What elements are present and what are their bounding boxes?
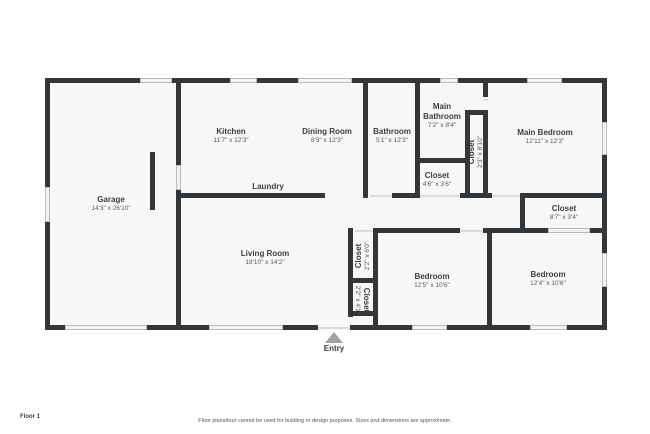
door-opening — [318, 327, 350, 329]
wall-segment — [257, 78, 298, 83]
floor-plan-page: Garage14'3" x 26'10"Kitchen11'7" x 12'3"… — [0, 0, 650, 434]
wall-segment — [602, 78, 607, 122]
wall-segment — [520, 228, 548, 233]
wall-segment — [373, 228, 460, 233]
room-dimensions: 8'9" x 12'3" — [302, 137, 352, 145]
room-dimensions: 12'5" x 10'6" — [414, 282, 450, 290]
room-label-dining-room: Dining Room8'9" x 12'3" — [302, 127, 352, 145]
room-label-bedroom: Bedroom12'4" x 10'6" — [530, 270, 566, 288]
room-name: Main Bathroom — [416, 102, 468, 122]
wall-segment — [178, 193, 325, 198]
room-name: Kitchen — [213, 127, 248, 137]
room-dimensions: 12'4" x 10'6" — [530, 280, 566, 288]
room-name: Bedroom — [414, 272, 450, 282]
room-name: Closet — [550, 204, 578, 214]
wall-segment — [350, 325, 412, 330]
room-name: Living Room — [241, 249, 289, 259]
room-dimensions: 14'3" x 26'10" — [91, 205, 130, 213]
wall-segment — [392, 193, 420, 198]
door-opening — [420, 195, 460, 197]
room-name: Laundry — [252, 182, 284, 192]
wall-segment — [602, 287, 607, 330]
wall-segment — [176, 83, 181, 165]
wall-segment — [590, 228, 607, 233]
entry-arrow-icon — [325, 332, 343, 343]
room-name: Garage — [91, 195, 130, 205]
room-name: Bedroom — [530, 270, 566, 280]
room-label-main-bedroom: Main Bedroom12'11" x 12'3" — [517, 128, 573, 146]
room-dimensions: 12'11" x 12'3" — [517, 138, 573, 146]
room-label-closet: Closet8'7" x 3'4" — [550, 204, 578, 222]
wall-segment — [45, 78, 50, 187]
wall-segment — [348, 278, 378, 283]
window-segment — [412, 325, 447, 330]
wall-segment — [483, 83, 488, 97]
disclaimer-text: Floor plans/tour cannot be used for buil… — [0, 418, 650, 424]
window-segment — [602, 253, 607, 287]
door-opening — [355, 230, 373, 232]
wall-segment — [447, 325, 530, 330]
wall-segment — [150, 152, 155, 210]
wall-segment — [487, 233, 492, 325]
door-opening — [492, 195, 520, 197]
window-segment — [65, 325, 147, 330]
room-label-main-bathroom: Main Bathroom7'2" x 8'4" — [416, 102, 468, 130]
wall-segment — [45, 222, 50, 330]
room-name: Closet — [354, 242, 364, 270]
room-dimensions: 7'2" x 8'4" — [416, 122, 468, 130]
window-segment — [209, 325, 283, 330]
room-dimensions: 2'2" x 4'1" — [353, 286, 361, 314]
room-dimensions: 18'10" x 14'2" — [241, 259, 289, 267]
room-label-laundry: Laundry — [252, 182, 284, 192]
room-label-closet: Closet2'2" x 4'1" — [353, 286, 371, 314]
window-segment — [140, 78, 172, 83]
entry-label: Entry — [324, 344, 344, 353]
wall-segment — [562, 78, 607, 83]
room-dimensions: 2'2" x 6'0" — [364, 242, 372, 270]
wall-segment — [567, 325, 607, 330]
room-label-closet: Closet2'3" x 8'10" — [467, 136, 485, 168]
wall-segment — [458, 78, 527, 83]
wall-segment — [415, 83, 420, 198]
room-dimensions: 4'6" x 3'6" — [423, 181, 451, 189]
room-label-garage: Garage14'3" x 26'10" — [91, 195, 130, 213]
room-label-living-room: Living Room18'10" x 14'2" — [241, 249, 289, 267]
room-dimensions: 5'1" x 12'3" — [373, 137, 411, 145]
room-name: Dining Room — [302, 127, 352, 137]
room-label-closet: Closet2'2" x 6'0" — [354, 242, 372, 270]
door-opening — [483, 99, 488, 101]
window-segment — [548, 228, 590, 233]
wall-segment — [45, 78, 140, 83]
wall-segment — [363, 83, 368, 198]
room-name: Closet — [361, 286, 371, 314]
window-segment — [45, 187, 50, 222]
wall-segment — [460, 193, 492, 198]
wall-segment — [520, 193, 607, 198]
window-segment — [602, 122, 607, 155]
room-label-bedroom: Bedroom12'5" x 10'6" — [414, 272, 450, 290]
room-name: Main Bedroom — [517, 128, 573, 138]
room-dimensions: 2'3" x 8'10" — [477, 136, 485, 168]
wall-segment — [283, 325, 318, 330]
room-label-bathroom: Bathroom5'1" x 12'3" — [373, 127, 411, 145]
window-segment — [440, 78, 458, 83]
room-label-kitchen: Kitchen11'7" x 12'3" — [213, 127, 248, 145]
room-label-closet: Closet4'6" x 3'6" — [423, 171, 451, 189]
room-name: Closet — [467, 136, 477, 168]
room-name: Bathroom — [373, 127, 411, 137]
window-segment — [298, 78, 352, 83]
door-opening — [370, 195, 392, 197]
room-dimensions: 8'7" x 3'4" — [550, 214, 578, 222]
wall-segment — [176, 190, 181, 330]
wall-segment — [602, 155, 607, 253]
door-opening — [460, 230, 483, 232]
window-segment — [527, 78, 562, 83]
wall-segment — [415, 158, 470, 163]
room-name: Closet — [423, 171, 451, 181]
room-dimensions: 11'7" x 12'3" — [213, 137, 248, 145]
window-segment — [230, 78, 257, 83]
window-segment — [176, 165, 181, 190]
window-segment — [530, 325, 567, 330]
